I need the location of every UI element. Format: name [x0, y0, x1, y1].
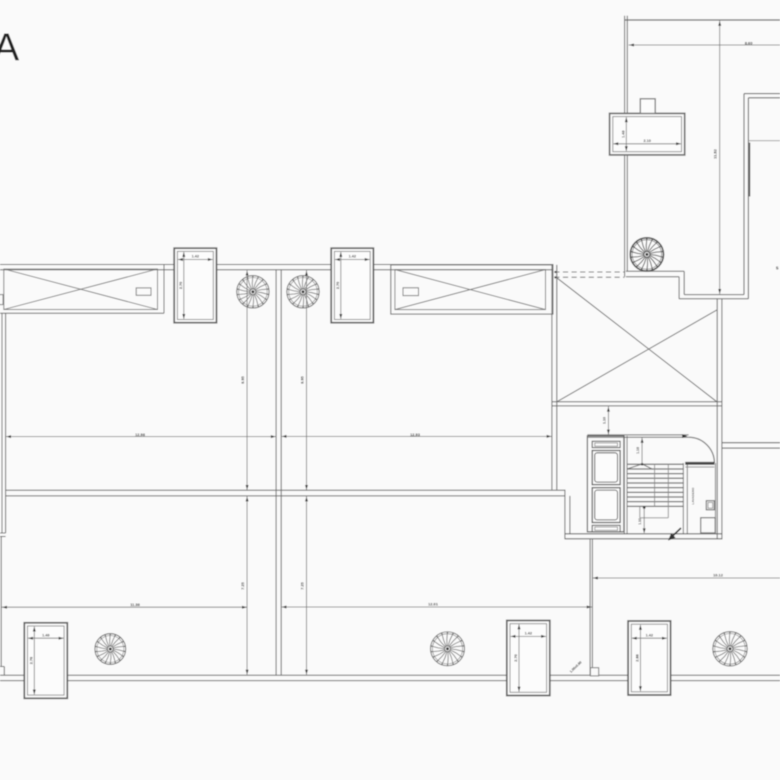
svg-text:2.10: 2.10: [643, 139, 650, 143]
svg-text:8.95: 8.95: [301, 376, 305, 383]
svg-text:1.42: 1.42: [349, 255, 356, 259]
svg-text:1.10: 1.10: [638, 518, 642, 525]
svg-text:2.70: 2.70: [514, 654, 518, 661]
svg-text:1.42: 1.42: [525, 632, 532, 636]
svg-text:7.25: 7.25: [301, 582, 305, 589]
svg-text:8.60: 8.60: [745, 40, 754, 45]
svg-text:2.88: 2.88: [635, 654, 639, 661]
svg-text:2.70: 2.70: [29, 657, 33, 664]
svg-text:1.42: 1.42: [192, 255, 199, 259]
svg-text:LAVADERO: LAVADERO: [691, 487, 695, 504]
svg-text:12.01: 12.01: [428, 602, 439, 607]
svg-text:1.40: 1.40: [42, 633, 49, 637]
svg-text:8.95: 8.95: [241, 376, 245, 383]
svg-text:12.98: 12.98: [135, 432, 146, 437]
svg-text:7.25: 7.25: [241, 582, 245, 589]
svg-text:1.10: 1.10: [602, 417, 606, 424]
svg-text:12.93: 12.93: [410, 432, 421, 437]
svg-text:11.52: 11.52: [713, 148, 718, 159]
svg-text:1.42: 1.42: [646, 633, 653, 637]
svg-text:2.70: 2.70: [179, 282, 183, 289]
svg-text:10.12: 10.12: [713, 573, 724, 578]
svg-text:1.40: 1.40: [621, 130, 625, 137]
svg-text:2.70: 2.70: [336, 282, 340, 289]
svg-text:1.10: 1.10: [636, 447, 640, 454]
svg-text:A: A: [0, 27, 20, 70]
svg-text:11.38: 11.38: [130, 602, 140, 607]
